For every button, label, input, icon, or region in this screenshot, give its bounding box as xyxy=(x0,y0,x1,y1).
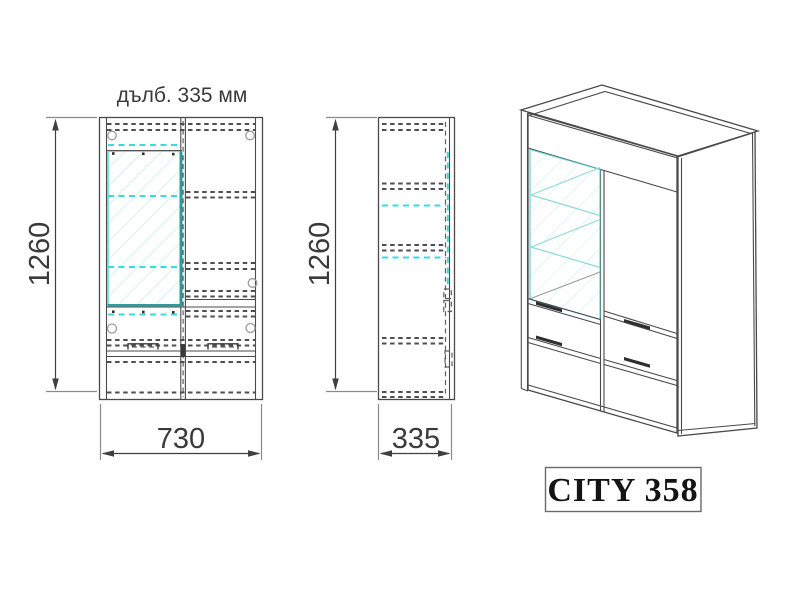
left-stile-3d xyxy=(521,110,528,391)
divider-block xyxy=(181,344,185,357)
front-height-value: 1260 xyxy=(24,222,56,287)
side-view xyxy=(379,118,455,400)
perspective-view xyxy=(521,85,758,436)
side-width-value: 335 xyxy=(392,423,440,455)
technical-drawing-canvas: дълб. 335 мм xyxy=(0,0,800,600)
model-label: CITY 358 xyxy=(547,472,698,509)
technical-drawing-page: дълб. 335 мм xyxy=(0,0,800,600)
glass-door-3d xyxy=(530,150,601,320)
dimension-front-height: 1260 xyxy=(24,118,97,392)
model-label-box: CITY 358 xyxy=(546,468,702,512)
dimension-front-width: 730 xyxy=(101,404,262,460)
front-width-value: 730 xyxy=(157,423,205,455)
dimension-side-height: 1260 xyxy=(304,118,377,392)
depth-label: дълб. 335 мм xyxy=(117,84,248,107)
side-panel-3d xyxy=(678,131,757,436)
front-view xyxy=(100,118,263,400)
dimension-side-width: 335 xyxy=(379,404,452,460)
side-height-value: 1260 xyxy=(304,222,336,287)
